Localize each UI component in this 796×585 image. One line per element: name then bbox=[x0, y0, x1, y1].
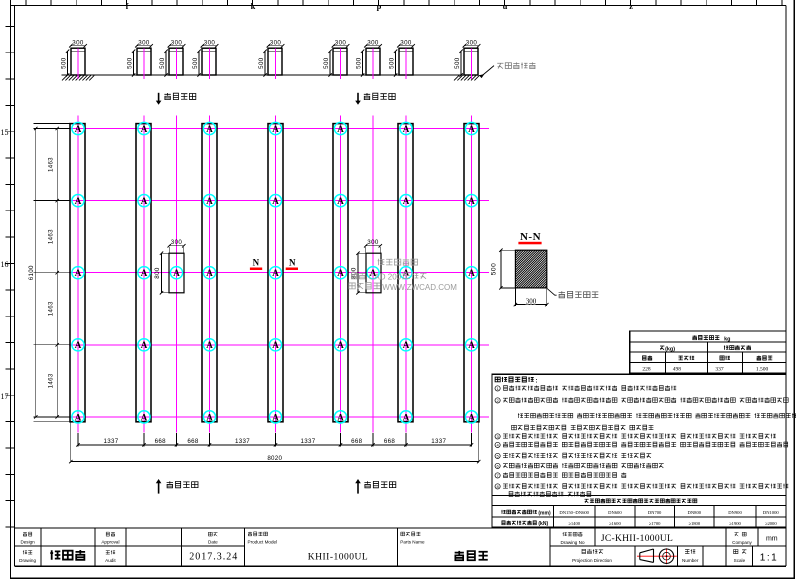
svg-text:f: f bbox=[126, 1, 129, 11]
svg-text:498: 498 bbox=[673, 366, 682, 372]
svg-text:A: A bbox=[141, 340, 148, 350]
svg-text:z: z bbox=[629, 1, 633, 11]
svg-text:500: 500 bbox=[454, 57, 461, 69]
svg-text:A: A bbox=[468, 124, 475, 134]
svg-text:8020: 8020 bbox=[267, 455, 282, 462]
svg-text:Audit: Audit bbox=[105, 558, 116, 563]
svg-text:500: 500 bbox=[323, 57, 330, 69]
svg-text:1463: 1463 bbox=[48, 373, 55, 388]
svg-text:668: 668 bbox=[384, 438, 395, 445]
svg-text:u: u bbox=[503, 1, 508, 11]
svg-text:228: 228 bbox=[642, 366, 651, 372]
svg-text:Date: Date bbox=[208, 540, 218, 545]
svg-text:A: A bbox=[403, 124, 410, 134]
svg-text:Parts Name: Parts Name bbox=[400, 540, 425, 545]
svg-text:Design: Design bbox=[20, 540, 35, 545]
svg-text:N: N bbox=[289, 258, 296, 268]
svg-text:A: A bbox=[337, 340, 344, 350]
svg-text:A: A bbox=[141, 196, 148, 206]
svg-text:300: 300 bbox=[526, 298, 537, 306]
svg-text:Drawing: Drawing bbox=[19, 558, 36, 563]
svg-text:1463: 1463 bbox=[48, 229, 55, 244]
svg-text:A: A bbox=[75, 124, 82, 134]
svg-text:500: 500 bbox=[389, 57, 396, 69]
svg-text:A: A bbox=[468, 412, 475, 422]
svg-text:300: 300 bbox=[72, 39, 84, 46]
svg-text:N: N bbox=[253, 258, 260, 268]
svg-text:k: k bbox=[251, 1, 256, 11]
svg-text:300: 300 bbox=[400, 39, 412, 46]
svg-text:A: A bbox=[468, 340, 475, 350]
svg-text:500: 500 bbox=[159, 57, 166, 69]
svg-text:A: A bbox=[206, 196, 213, 206]
svg-text:≥1900: ≥1900 bbox=[729, 521, 741, 526]
svg-text:A: A bbox=[75, 412, 82, 422]
svg-text:A: A bbox=[272, 196, 279, 206]
svg-text:668: 668 bbox=[155, 438, 166, 445]
svg-text::: : bbox=[535, 378, 537, 385]
svg-text:A: A bbox=[206, 268, 213, 278]
svg-text:A: A bbox=[141, 412, 148, 422]
svg-text:300: 300 bbox=[466, 39, 478, 46]
svg-text:≥1700: ≥1700 bbox=[649, 521, 661, 526]
svg-text:A: A bbox=[337, 412, 344, 422]
svg-text:A: A bbox=[468, 268, 475, 278]
svg-text:DN600: DN600 bbox=[608, 510, 622, 515]
svg-text:300: 300 bbox=[138, 39, 150, 46]
svg-text:A: A bbox=[272, 412, 279, 422]
svg-text:CAD 2007: CAD 2007 bbox=[369, 273, 406, 282]
svg-text:≥1400: ≥1400 bbox=[568, 521, 580, 526]
svg-text:A: A bbox=[337, 196, 344, 206]
svg-text:WWW.ZWCAD.COM: WWW.ZWCAD.COM bbox=[382, 283, 457, 292]
svg-text:Scale: Scale bbox=[734, 558, 746, 563]
svg-text:≥1800: ≥1800 bbox=[688, 521, 700, 526]
svg-text:15: 15 bbox=[1, 128, 9, 137]
svg-text:mm: mm bbox=[766, 535, 778, 542]
svg-text:Approval: Approval bbox=[101, 540, 119, 545]
svg-text:500: 500 bbox=[490, 263, 497, 276]
svg-text:800: 800 bbox=[154, 267, 161, 279]
svg-text:668: 668 bbox=[187, 438, 198, 445]
svg-text:A: A bbox=[403, 412, 410, 422]
svg-text:300: 300 bbox=[367, 39, 379, 46]
svg-text:(mm): (mm) bbox=[538, 510, 551, 516]
svg-text:300: 300 bbox=[171, 239, 183, 246]
svg-text:500: 500 bbox=[192, 57, 199, 69]
svg-text:Projection Direction: Projection Direction bbox=[572, 558, 612, 563]
svg-text:Company: Company bbox=[732, 540, 752, 545]
svg-text:A: A bbox=[75, 196, 82, 206]
svg-text:300: 300 bbox=[270, 39, 282, 46]
svg-text:DN800: DN800 bbox=[688, 510, 702, 515]
svg-text:1.500: 1.500 bbox=[756, 366, 769, 372]
svg-text:kg: kg bbox=[724, 336, 730, 342]
svg-text:A: A bbox=[141, 268, 148, 278]
svg-text:500: 500 bbox=[127, 57, 134, 69]
svg-text:A: A bbox=[206, 124, 213, 134]
svg-text:A: A bbox=[403, 196, 410, 206]
svg-text:1337: 1337 bbox=[301, 438, 316, 445]
svg-text:300: 300 bbox=[171, 39, 183, 46]
svg-text:300: 300 bbox=[204, 39, 216, 46]
svg-text:A: A bbox=[75, 340, 82, 350]
svg-text:A: A bbox=[75, 268, 82, 278]
svg-text:DN1000: DN1000 bbox=[763, 510, 780, 515]
svg-text:A: A bbox=[206, 340, 213, 350]
svg-text:A: A bbox=[272, 340, 279, 350]
svg-text:A: A bbox=[206, 412, 213, 422]
svg-text:(kg): (kg) bbox=[665, 346, 675, 352]
svg-text:1337: 1337 bbox=[235, 438, 250, 445]
svg-text:JC-KHII-1000UL: JC-KHII-1000UL bbox=[601, 534, 673, 544]
svg-text:(kN): (kN) bbox=[538, 521, 548, 527]
svg-text:A: A bbox=[403, 340, 410, 350]
svg-text:337: 337 bbox=[715, 366, 724, 372]
svg-text:≥1600: ≥1600 bbox=[609, 521, 621, 526]
svg-text:1:1: 1:1 bbox=[760, 552, 778, 563]
svg-text:A: A bbox=[141, 124, 148, 134]
svg-text:A: A bbox=[337, 268, 344, 278]
svg-text:1337: 1337 bbox=[104, 438, 119, 445]
svg-text:Product Model: Product Model bbox=[248, 540, 278, 545]
svg-text:16: 16 bbox=[1, 260, 9, 269]
svg-text:500: 500 bbox=[258, 57, 265, 69]
svg-text:500: 500 bbox=[61, 57, 68, 69]
svg-text:1463: 1463 bbox=[48, 157, 55, 172]
svg-text:DN900: DN900 bbox=[728, 510, 742, 515]
svg-text:N-N: N-N bbox=[520, 231, 541, 243]
svg-text:A: A bbox=[468, 196, 475, 206]
svg-text:Number: Number bbox=[682, 558, 699, 563]
svg-text:DN150~DN600: DN150~DN600 bbox=[559, 510, 589, 515]
svg-text:p: p bbox=[377, 1, 382, 11]
svg-text:A: A bbox=[337, 124, 344, 134]
svg-text:300: 300 bbox=[335, 39, 347, 46]
svg-text:17: 17 bbox=[1, 392, 9, 401]
svg-text:668: 668 bbox=[351, 438, 362, 445]
svg-text:Drawing No: Drawing No bbox=[561, 540, 585, 545]
svg-text:500: 500 bbox=[356, 57, 363, 69]
svg-text:300: 300 bbox=[367, 239, 379, 246]
svg-text:KHII-1000UL: KHII-1000UL bbox=[308, 552, 368, 562]
svg-text:A: A bbox=[173, 268, 180, 278]
svg-text:A: A bbox=[272, 268, 279, 278]
svg-text:1337: 1337 bbox=[431, 438, 446, 445]
svg-text:DN700: DN700 bbox=[648, 510, 662, 515]
svg-text:1463: 1463 bbox=[48, 301, 55, 316]
svg-text:≥2000: ≥2000 bbox=[765, 521, 777, 526]
svg-text:2017.3.24: 2017.3.24 bbox=[189, 552, 238, 563]
svg-text:A: A bbox=[272, 124, 279, 134]
